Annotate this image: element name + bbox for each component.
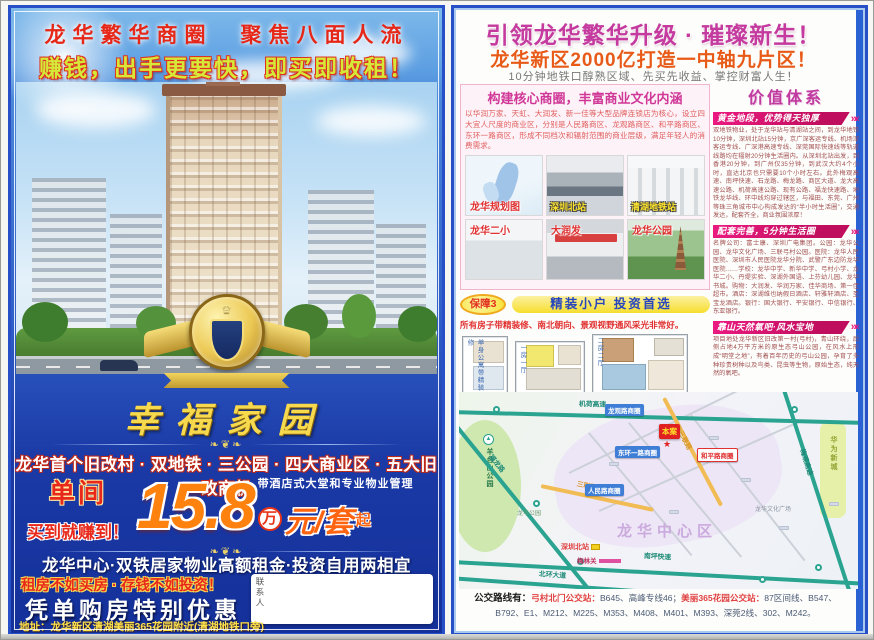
map-junction: [533, 500, 540, 507]
emblem-circle: ♛: [189, 294, 265, 370]
contact-box: 联系人: [251, 574, 433, 624]
price-qi: 起: [356, 509, 371, 530]
tree: [398, 306, 437, 342]
value-section-amenities: 配套完善，5分钟生活圈 »» 名牌公司：富士康、深圳广电集团。公园：龙华公园、龙…: [713, 225, 859, 317]
photo-caption: 清湖地铁站: [631, 200, 676, 213]
flyer-scan: 龙华繁华商圈 聚焦八面人流 赚钱，出手更要快，即买即收租！: [0, 0, 874, 640]
map-label-culture-square: 龙华文化广场: [755, 504, 791, 513]
floor-plans: 单身公寓带精装修 一房一厅 二房二厅: [460, 334, 710, 394]
left-subtitle: 赚钱，出手更要快，即买即收租！: [11, 49, 442, 83]
bus-station-2: 美丽365花园公交站：: [681, 593, 764, 603]
map-label-meilinguan: 梅林关: [577, 555, 621, 565]
photo-caption: 龙华二小: [470, 222, 510, 237]
contact-label: 联系人: [254, 577, 266, 609]
map-bus-stop: [829, 502, 839, 506]
pagoda-icon: [673, 226, 688, 270]
guarantee-badge: 保障3: [460, 294, 506, 315]
photo-metro-station: 清湖地铁站: [627, 155, 705, 216]
chevrons-icon: »»: [851, 321, 859, 333]
value-system-panel: 价值体系 黄金地段，优势得天独厚 »» 双地铁物业，处于龙华站与清湖站之间，到龙…: [713, 84, 859, 390]
price-slogan: 买到就赚到！: [19, 518, 137, 543]
map-zone-longguan: 龙观路商圈: [605, 404, 644, 416]
value-body: 项目地处龙华新区旧改第一村(弓村)，青山环绕，后侧占地4万平方米的原生态弓山公园…: [713, 336, 859, 379]
value-body: 双地铁物业，处于龙华站与清湖站之间，到龙华地铁10分钟，深圳北站15分钟，京广深…: [713, 127, 859, 221]
value-system-title: 价值体系: [713, 84, 859, 108]
guarantee-desc: 所有房子带精装修、南北朝向、景观视野通风采光非常好。: [460, 319, 710, 331]
map-label-jihe: 机荷高速: [579, 398, 606, 409]
map-label-beihuan: 北环大道: [539, 568, 567, 580]
business-box-body: 以华润万家、天虹、大润发、新一佳等大型品牌连锁店为核心，设立四大宜人尺度的商业区…: [465, 109, 705, 152]
map-bus-stop: [779, 526, 789, 530]
bus-routes-1: B645、高峰专线46；: [600, 593, 681, 603]
value-banner: 靠山天然氧吧·风水宝地: [713, 321, 850, 334]
left-page: 龙华繁华商圈 聚焦八面人流 赚钱，出手更要快，即买即收租！: [8, 5, 445, 636]
photo-planning-map: 龙华规划图: [465, 155, 543, 216]
value-banner: 配套完善，5分钟生活圈: [713, 225, 850, 238]
map-label-nanping: 南坪快速: [644, 550, 672, 561]
chevrons-icon: »»: [851, 226, 859, 238]
map-junction: [759, 576, 766, 583]
guarantee-title: 精装小户 投资首选: [512, 296, 710, 313]
shield-icon: [210, 319, 244, 361]
photo-caption: 深圳北站: [550, 200, 586, 213]
photo-north-station: 深圳北站: [546, 155, 624, 216]
station-icon: [591, 544, 600, 550]
floor-plan-1br: 一房一厅: [515, 341, 585, 394]
value-section-location: 黄金地段，优势得天独厚 »» 双地铁物业，处于龙华站与清湖站之间，到龙华地铁10…: [713, 112, 859, 221]
room-type: 单间: [19, 473, 137, 510]
cloud-decoration: [316, 106, 426, 136]
guarantee-section: 保障3 精装小户 投资首选 所有房子带精装修、南北朝向、景观视野通风采光非常好。…: [460, 294, 710, 390]
tree: [22, 302, 68, 342]
map-label-center: 龙华中心区: [617, 520, 717, 541]
value-banner: 黄金地段，优势得天独厚: [713, 112, 850, 125]
map-label-huawei: 华为新城: [828, 436, 838, 472]
floor-plan-studio: 单身公寓带精装修: [462, 336, 508, 394]
photo-caption: 龙华公园: [632, 222, 672, 237]
map-junction: [815, 564, 822, 571]
price-unit: 元/套: [285, 497, 353, 541]
business-circle-box: 构建核心商圈，丰富商业文化内涵 以华润万家、天虹、大润发、新一佳等大型品牌连锁店…: [460, 84, 710, 290]
benefit-line: 龙华中心·双铁居家物业高额租金·投资自用两相宜: [11, 552, 442, 576]
map-label-north-station: 深圳北站: [561, 542, 600, 552]
emblem-ribbon: [164, 373, 290, 388]
chevrons-icon: »»: [851, 113, 859, 125]
business-box-title: 构建核心商圈，丰富商业文化内涵: [465, 88, 705, 107]
floor-plan-label: 一房一厅: [517, 344, 527, 374]
floor-plan-label: 单身公寓带精装修: [464, 339, 484, 393]
left-banner-title: 龙华繁华商圈 聚焦八面人流: [11, 19, 442, 49]
map-junction: [791, 406, 798, 413]
photo-school: 龙华二小: [465, 219, 543, 280]
right-tagline: 10分钟地铁口醇熟区域、先买先收益、掌控财富人生！: [454, 68, 853, 84]
map-junction: [493, 406, 500, 413]
photo-supermarket: 大润发: [546, 219, 624, 280]
address-line: 地址：龙华新区清湖美丽365花园附近(清湖地铁口旁): [19, 619, 434, 634]
palm-tree: [342, 294, 376, 338]
bus-prefix: 公交路线有：: [474, 593, 531, 604]
crown-icon: ♛: [222, 303, 232, 316]
photo-caption: 龙华规划图: [470, 198, 520, 213]
price-number: 15.8: [137, 471, 254, 541]
floor-plan-2br: 二房二厅: [592, 334, 688, 394]
map-bus-stop: [709, 436, 719, 440]
emblem-wing-left: [144, 320, 196, 359]
map-project-marker: 本案: [659, 424, 680, 439]
map-bus-stop: [741, 478, 751, 482]
map-zone-heping: 和平路商圈: [697, 448, 738, 462]
map-label-longhua-park: 龙华公园: [517, 508, 541, 517]
price-note: 带酒店式大堂和专业物业管理: [258, 475, 438, 491]
photo-caption: 大润发: [551, 222, 581, 237]
value-body: 名牌公司：富士康、深圳广电集团。公园：龙华公园、龙华文化广场、三联弓村公园。医院…: [713, 240, 859, 317]
map-zone-renmin: 人民路商圈: [585, 484, 624, 496]
value-section-nature: 靠山天然氧吧·风水宝地 »» 项目地处龙华新区旧改第一村(弓村)，青山环绕，后侧…: [713, 321, 859, 379]
car: [100, 360, 138, 371]
checkpoint-bar-icon: [599, 559, 621, 563]
right-page: 引领龙华繁华升级 · 璀璨新生！ 龙华新区2000亿打造一中轴九片区！ 10分钟…: [451, 5, 868, 636]
bus-station-1: 弓村北门公交站：: [531, 593, 600, 603]
map-bus-stop: [609, 462, 619, 466]
map-bus-stop: [669, 510, 679, 514]
price-block: 单间 买到就赚到！ 15.8 带酒店式大堂和专业物业管理 万 元/套 起: [19, 471, 438, 547]
photo-park: 龙华公园: [627, 219, 705, 280]
project-name: 幸福家园: [11, 392, 442, 443]
location-map: ▲ 羊台山公园 华为新城: [459, 392, 858, 589]
star-icon: ★: [663, 439, 671, 450]
emblem-wing-right: [258, 320, 310, 359]
wan-circle-badge: 万: [258, 507, 282, 531]
map-label-meiguan: 梅观高速: [798, 447, 816, 476]
map-zone-donghuan: 东环一路商圈: [615, 446, 660, 458]
mountain-icon: ▲: [483, 434, 494, 445]
scan-edge-shadow: [1, 634, 873, 639]
floor-plan-label: 二房二厅: [594, 337, 604, 367]
gold-emblem: ♛: [142, 290, 312, 388]
bus-routes-line: 公交路线有：弓村北门公交站：B645、高峰专线46；美丽365花园公交站：87区…: [460, 592, 851, 620]
photo-grid: 龙华规划图 深圳北站 清湖地铁站 龙华二小 大润发 龙华公园: [465, 155, 705, 280]
